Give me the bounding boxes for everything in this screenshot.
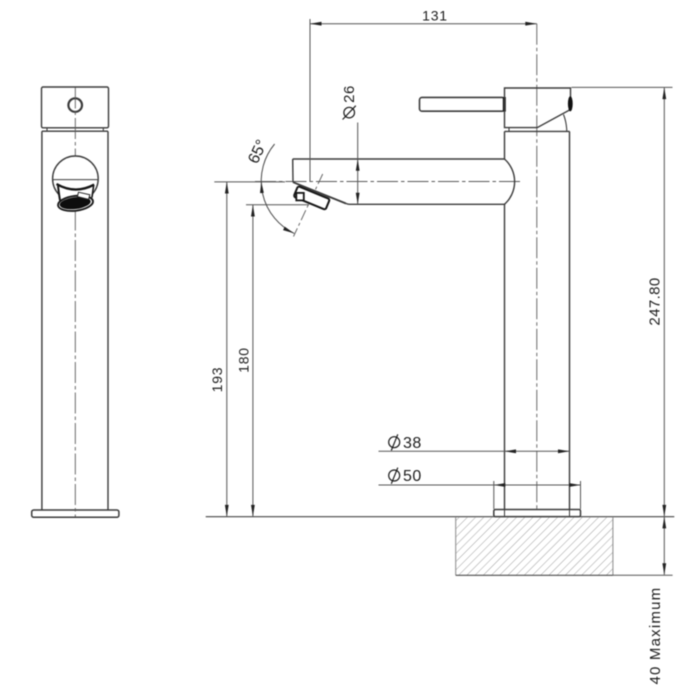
svg-text:247.80: 247.80 xyxy=(647,277,664,325)
svg-text:180: 180 xyxy=(236,347,252,373)
svg-text:50: 50 xyxy=(403,468,422,485)
svg-text:131: 131 xyxy=(422,8,448,24)
svg-text:26: 26 xyxy=(341,85,358,103)
svg-text:193: 193 xyxy=(209,367,225,393)
svg-text:65°: 65° xyxy=(245,137,271,166)
svg-text:38: 38 xyxy=(403,435,422,452)
svg-text:40 Maximum: 40 Maximum xyxy=(647,587,664,685)
